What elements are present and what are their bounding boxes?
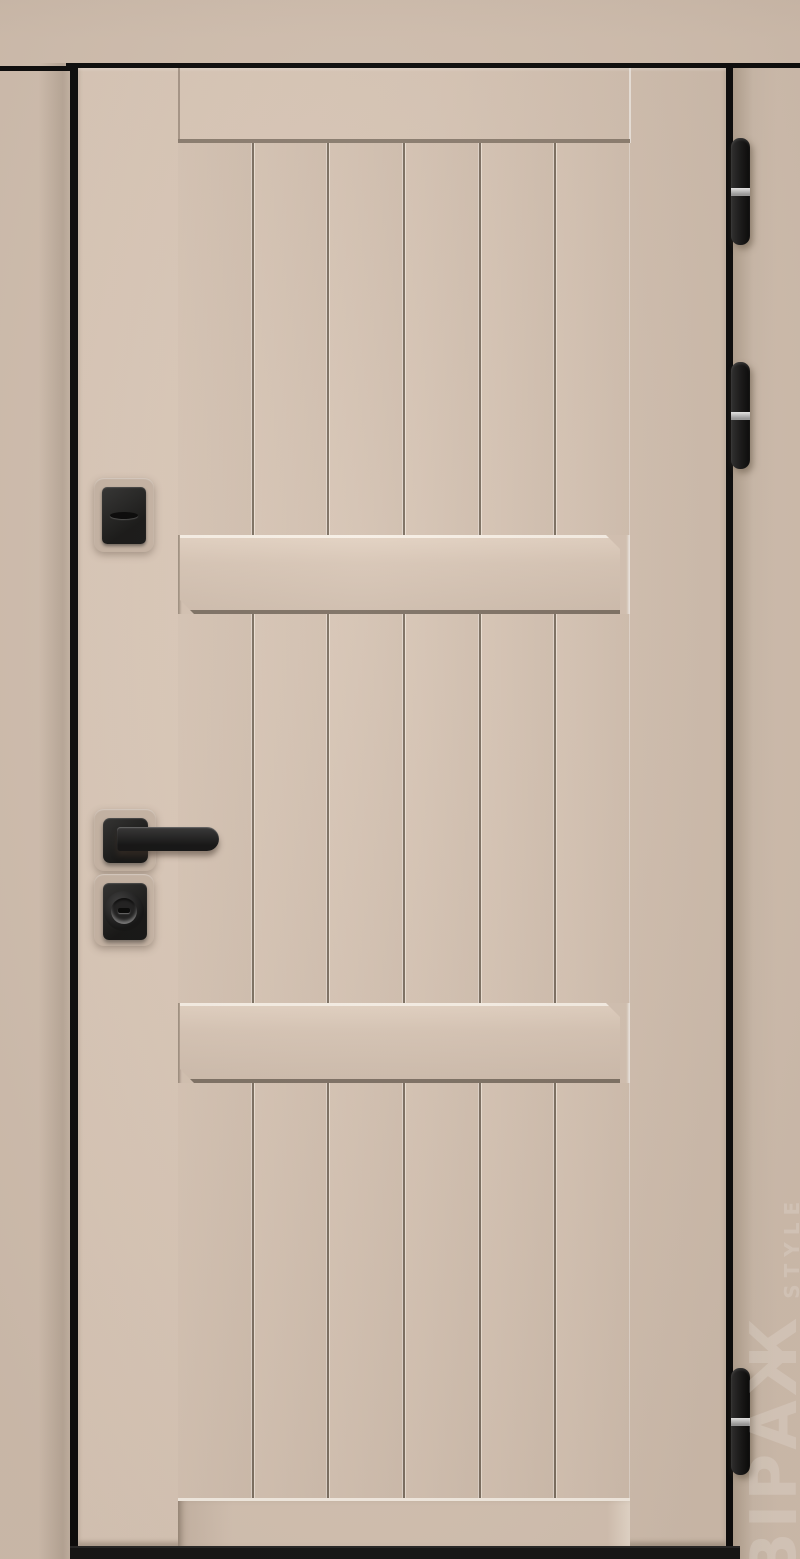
door-threshold — [70, 1546, 740, 1559]
door-handle — [117, 827, 219, 851]
crossbar-upper — [180, 535, 620, 614]
plank — [178, 614, 252, 1003]
plank-section-bottom — [178, 1083, 630, 1498]
plank — [327, 1083, 403, 1498]
hinge-steel-ring — [731, 412, 750, 420]
crossbar-lower — [180, 1003, 620, 1083]
plank — [479, 1083, 555, 1498]
plank — [178, 1083, 252, 1498]
plank — [479, 614, 555, 1003]
door-product-photo: ВІРАЖ STYLE — [0, 0, 800, 1559]
plank — [252, 143, 328, 535]
plank — [554, 614, 630, 1003]
hinge-middle — [731, 362, 750, 469]
plank — [554, 143, 630, 535]
door-panel — [178, 139, 630, 1547]
hinge-steel-ring — [731, 188, 750, 196]
hinge-top — [731, 138, 750, 245]
frame-gap-line-left — [0, 66, 70, 71]
plank — [403, 1083, 479, 1498]
cylinder-keyhole — [118, 908, 130, 913]
frame-gap-line-right — [66, 63, 800, 68]
plank — [403, 614, 479, 1003]
keyhole-slot — [110, 512, 138, 519]
door-edge-right — [726, 63, 733, 1547]
plank — [554, 1083, 630, 1498]
bottom-rail — [178, 1498, 630, 1547]
door-leaf — [78, 68, 726, 1547]
hinge-bottom — [731, 1368, 750, 1475]
plank — [178, 143, 252, 535]
plank-section-upper — [178, 143, 630, 535]
plank — [252, 1083, 328, 1498]
door-frame-top — [0, 0, 800, 63]
plank-section-middle — [178, 614, 630, 1003]
hinge-steel-ring — [731, 1418, 750, 1426]
plank — [403, 143, 479, 535]
top-rail-joint-right — [629, 68, 631, 143]
top-rail-joint-left — [178, 68, 180, 143]
door-frame-left — [0, 0, 70, 1559]
plank — [327, 614, 403, 1003]
door-edge-left — [70, 66, 78, 1547]
plank — [327, 143, 403, 535]
plank — [479, 143, 555, 535]
plank — [252, 614, 328, 1003]
